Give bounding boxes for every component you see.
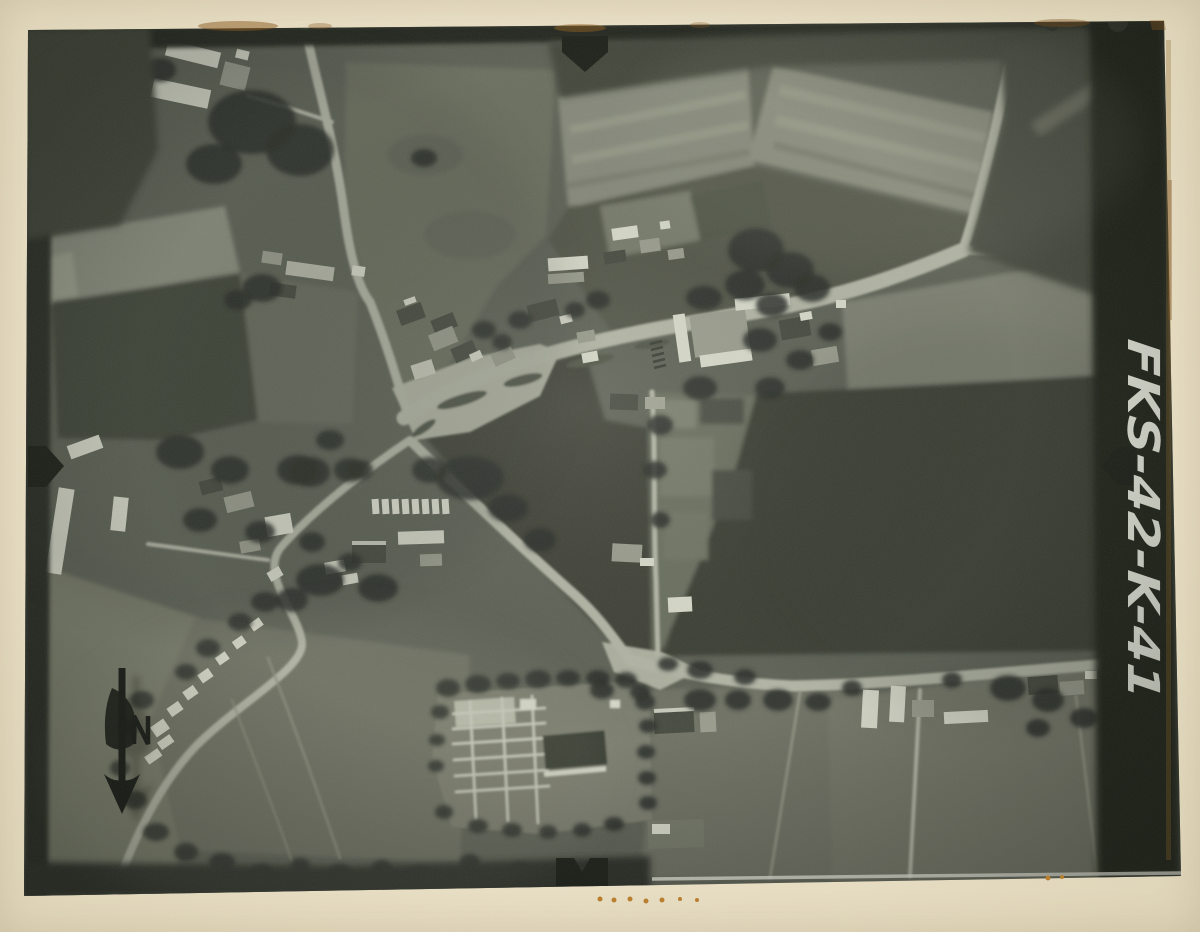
- mounted-photo-card: FKS-42-K-41: [0, 0, 1200, 932]
- aerial-photo-scan: FKS-42-K-41: [0, 0, 1200, 932]
- paper-grain-overlay: [0, 0, 1200, 932]
- mount-stains: [0, 0, 1200, 932]
